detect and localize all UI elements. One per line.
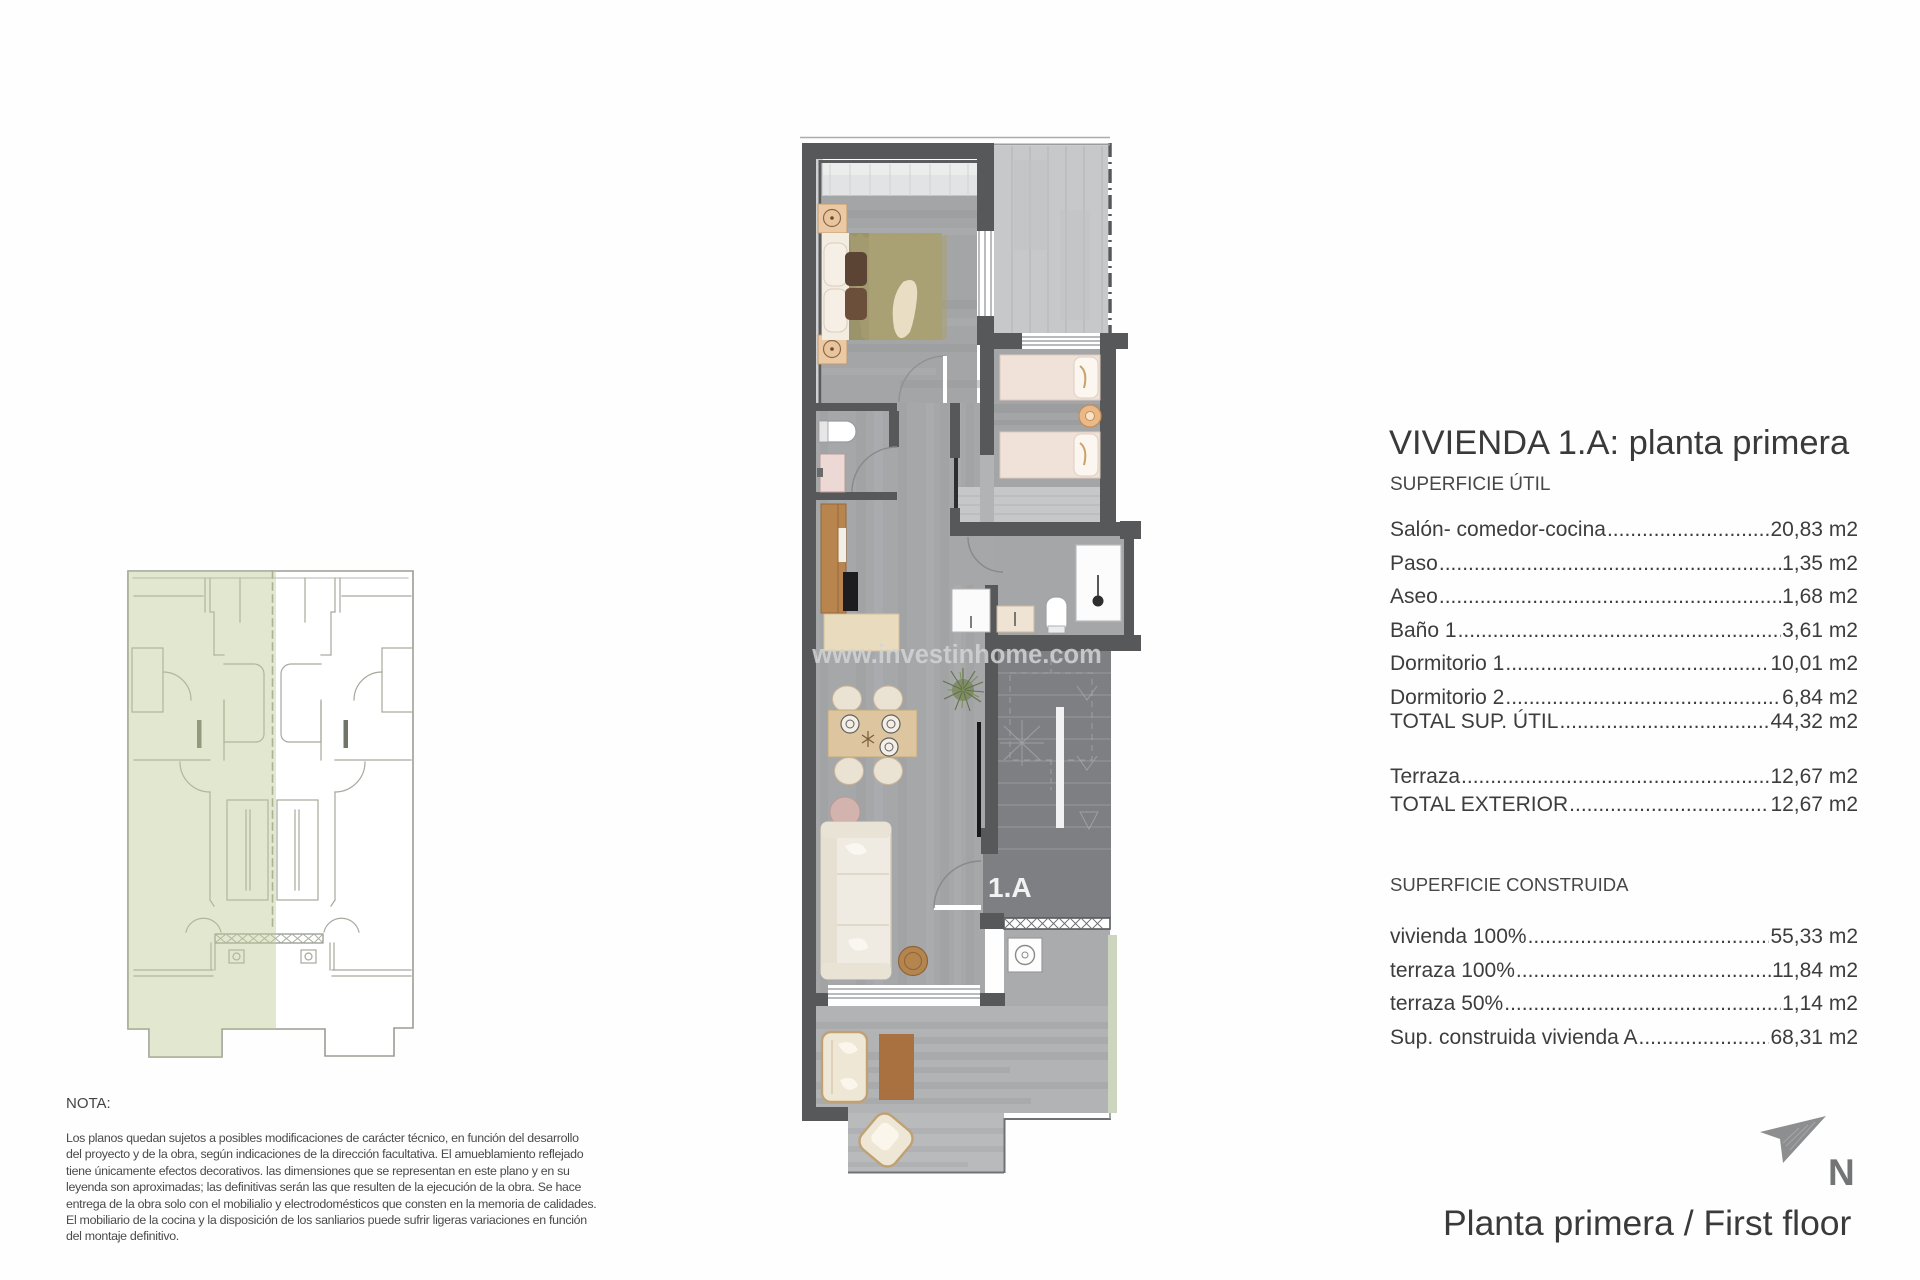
svg-text:1.A: 1.A (988, 872, 1032, 903)
svg-text:www.investinhome.com: www.investinhome.com (811, 641, 1102, 669)
svg-text:N: N (1828, 1152, 1855, 1193)
